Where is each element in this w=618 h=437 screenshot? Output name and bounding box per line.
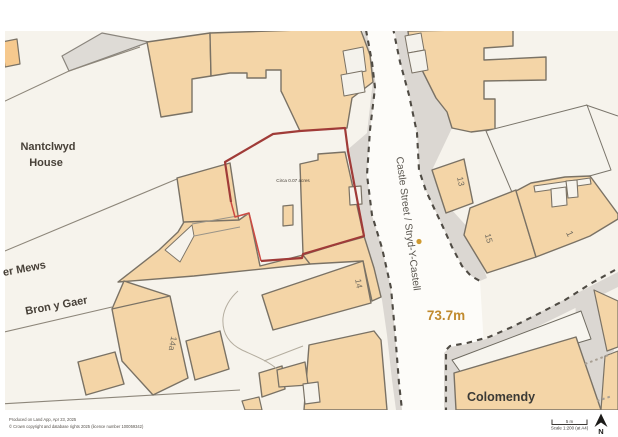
svg-text:14: 14	[353, 278, 365, 289]
svg-text:House: House	[29, 157, 63, 169]
svg-text:Circa 0.07 acres: Circa 0.07 acres	[276, 178, 310, 183]
svg-text:Colomendy: Colomendy	[467, 390, 535, 404]
svg-text:5 m: 5 m	[566, 419, 574, 424]
svg-text:73.7m: 73.7m	[427, 308, 465, 323]
svg-text:Scale 1:200 (at A4): Scale 1:200 (at A4)	[551, 426, 589, 431]
svg-text:Produced on Land App, Apr 23,: Produced on Land App, Apr 23, 2025	[9, 417, 77, 422]
svg-text:Nantclwyd: Nantclwyd	[20, 141, 75, 153]
svg-text:N: N	[598, 427, 603, 436]
svg-text:© Crown copyright and database: © Crown copyright and database rights 20…	[9, 424, 144, 429]
